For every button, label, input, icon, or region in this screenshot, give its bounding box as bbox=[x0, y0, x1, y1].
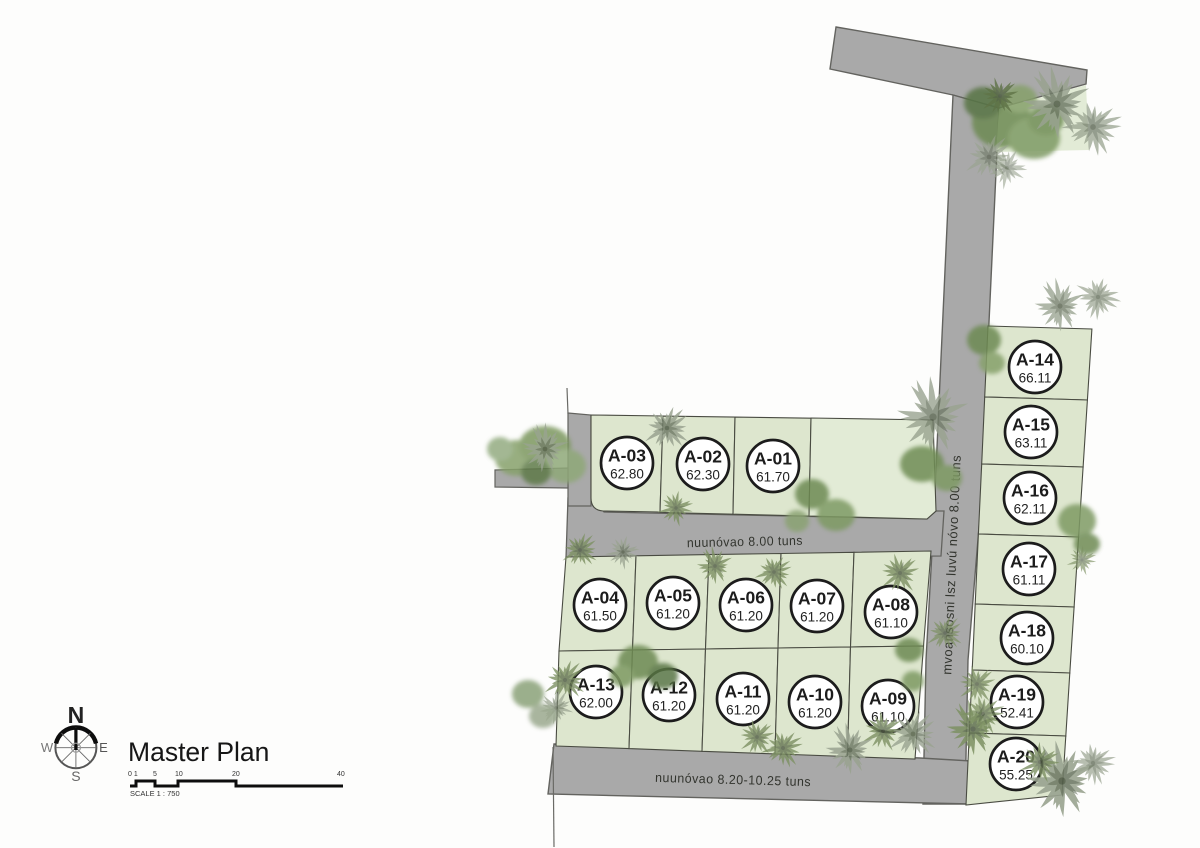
svg-text:A-17: A-17 bbox=[1010, 552, 1048, 572]
svg-text:62.30: 62.30 bbox=[686, 468, 720, 483]
svg-text:62.00: 62.00 bbox=[579, 696, 613, 711]
svg-text:61.70: 61.70 bbox=[756, 470, 790, 485]
svg-text:A-04: A-04 bbox=[581, 588, 619, 608]
svg-text:63.11: 63.11 bbox=[1015, 436, 1048, 451]
svg-text:40: 40 bbox=[337, 771, 345, 778]
svg-text:61.20: 61.20 bbox=[652, 699, 686, 714]
svg-text:A-10: A-10 bbox=[796, 685, 834, 705]
svg-text:62.80: 62.80 bbox=[610, 467, 644, 482]
svg-text:61.20: 61.20 bbox=[729, 609, 763, 624]
svg-text:A-11: A-11 bbox=[725, 682, 762, 702]
svg-text:nuunóvao 8.00 tuns: nuunóvao 8.00 tuns bbox=[687, 533, 803, 550]
svg-text:60.10: 60.10 bbox=[1010, 642, 1044, 657]
svg-text:A-19: A-19 bbox=[998, 685, 1036, 705]
svg-text:A-09: A-09 bbox=[869, 689, 907, 709]
svg-text:62.11: 62.11 bbox=[1014, 502, 1047, 517]
svg-text:A-15: A-15 bbox=[1012, 415, 1050, 435]
svg-text:52.41: 52.41 bbox=[1000, 706, 1034, 721]
svg-text:W: W bbox=[41, 740, 54, 755]
svg-text:A-16: A-16 bbox=[1011, 481, 1049, 501]
svg-text:61.20: 61.20 bbox=[656, 607, 690, 622]
svg-text:N: N bbox=[68, 702, 85, 728]
svg-text:A-03: A-03 bbox=[608, 446, 646, 466]
svg-text:61.11: 61.11 bbox=[1013, 573, 1046, 588]
svg-text:5: 5 bbox=[153, 771, 157, 778]
svg-text:10: 10 bbox=[175, 771, 183, 778]
svg-text:55.25: 55.25 bbox=[999, 768, 1033, 783]
svg-text:61.20: 61.20 bbox=[726, 703, 760, 718]
svg-text:A-02: A-02 bbox=[684, 447, 722, 467]
svg-text:A-05: A-05 bbox=[654, 586, 692, 606]
svg-text:A-06: A-06 bbox=[727, 588, 765, 608]
svg-text:A-14: A-14 bbox=[1016, 350, 1054, 370]
svg-text:A-18: A-18 bbox=[1008, 621, 1046, 641]
svg-text:SCALE 1 : 750: SCALE 1 : 750 bbox=[130, 789, 180, 798]
svg-text:A-01: A-01 bbox=[754, 449, 792, 469]
svg-text:A-08: A-08 bbox=[872, 595, 910, 615]
svg-text:61.50: 61.50 bbox=[583, 609, 617, 624]
svg-text:61.20: 61.20 bbox=[798, 706, 832, 721]
svg-text:0 1: 0 1 bbox=[128, 771, 138, 778]
svg-text:61.20: 61.20 bbox=[800, 610, 834, 625]
svg-text:66.11: 66.11 bbox=[1019, 371, 1052, 386]
svg-text:A-07: A-07 bbox=[798, 589, 836, 609]
svg-text:Master Plan: Master Plan bbox=[128, 737, 269, 767]
svg-text:61.10: 61.10 bbox=[874, 616, 908, 631]
svg-text:20: 20 bbox=[232, 771, 240, 778]
svg-text:E: E bbox=[99, 740, 108, 755]
svg-text:S: S bbox=[71, 768, 80, 784]
